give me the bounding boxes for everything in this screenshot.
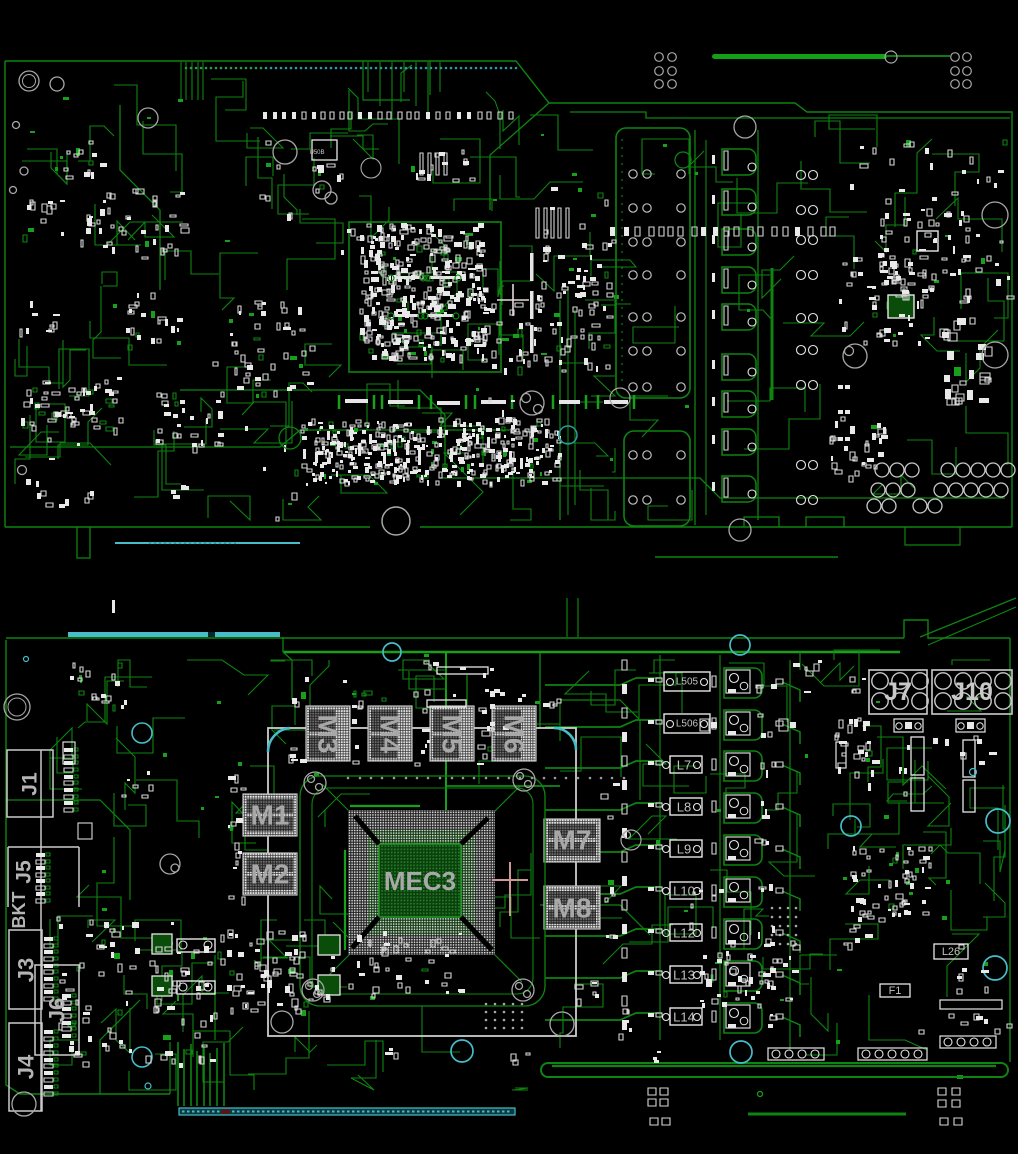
svg-text:L8: L8 [677,800,691,815]
svg-text:J1: J1 [19,772,42,796]
svg-text:M4: M4 [375,715,406,754]
svg-text:U50B: U50B [309,150,324,156]
svg-text:M5: M5 [437,715,468,754]
svg-text:M2: M2 [251,859,290,890]
svg-text:M7: M7 [553,825,592,856]
svg-text:L12: L12 [673,926,695,941]
svg-text:J7: J7 [884,678,912,706]
svg-text:J3: J3 [14,958,39,982]
svg-text:M6: M6 [499,715,530,754]
svg-text:M3: M3 [313,715,344,754]
svg-text:L10: L10 [673,884,695,899]
svg-text:L26: L26 [942,946,960,958]
svg-text:L506: L506 [676,719,699,730]
svg-text:L9: L9 [677,842,691,857]
svg-text:L13: L13 [673,968,695,983]
svg-text:J5: J5 [13,860,36,884]
svg-text:J10: J10 [951,678,993,706]
svg-text:L7: L7 [677,758,691,773]
svg-text:L505: L505 [676,677,699,688]
svg-text:M8: M8 [553,893,592,924]
svg-text:BKT: BKT [9,892,29,929]
svg-text:J4: J4 [14,1054,39,1079]
svg-text:M1: M1 [251,800,290,831]
svg-text:F1: F1 [889,985,902,997]
svg-text:L14: L14 [673,1010,695,1025]
svg-text:J6: J6 [45,998,70,1022]
svg-text:MEC3: MEC3 [384,866,456,896]
